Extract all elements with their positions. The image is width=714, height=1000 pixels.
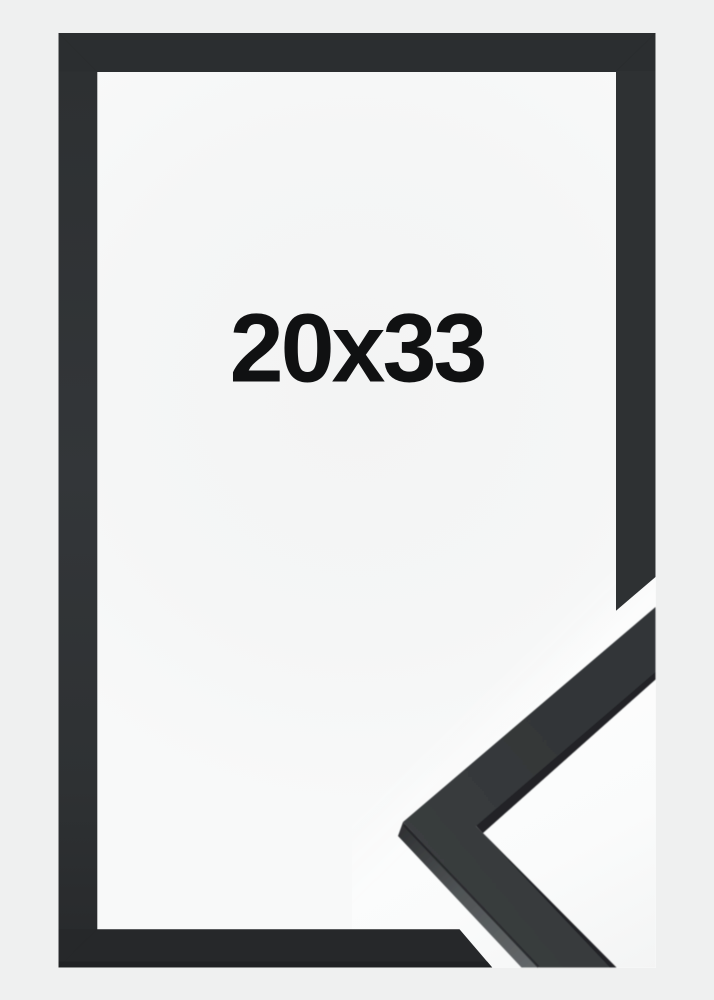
svg-text:20x33: 20x33 (230, 294, 485, 403)
